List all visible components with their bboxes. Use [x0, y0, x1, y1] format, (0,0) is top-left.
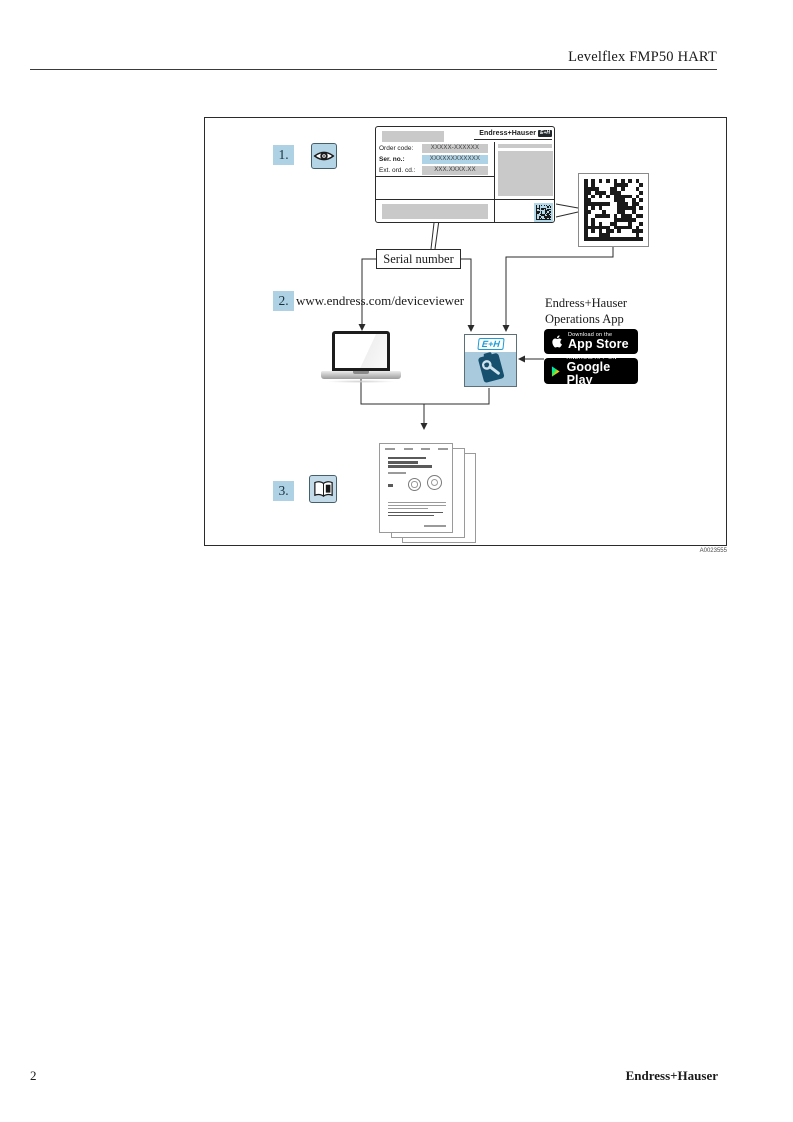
nameplate-placeholder	[498, 151, 553, 196]
figure-identification-diagram: 1. Endress+Hauser E+H Order code: XXXXX-…	[204, 117, 727, 546]
nameplate-row-ext-order-code: Ext. ord. cd.: XXX.XXXX.XX	[379, 165, 488, 175]
nameplate-qr-code-icon	[534, 203, 553, 222]
clipboard-wrench-icon	[469, 351, 513, 387]
header-rule	[30, 69, 717, 70]
eh-logo-icon: E+H	[477, 338, 504, 350]
data-matrix-code-icon	[578, 173, 649, 247]
app-store-badge: Download on the App Store	[544, 329, 638, 354]
step-2-number: 2.	[273, 291, 294, 311]
eye-icon	[311, 143, 337, 169]
nameplate-divider	[494, 142, 495, 223]
step-3-number: 3.	[273, 481, 294, 501]
nameplate-separator	[376, 176, 494, 177]
order-code-value: XXXXX-XXXXXX	[422, 144, 488, 153]
nameplate-placeholder	[382, 204, 488, 219]
document-page-front	[379, 443, 453, 533]
nameplate-row-order-code: Order code: XXXXX-XXXXXX	[379, 143, 488, 153]
device-nameplate: Endress+Hauser E+H Order code: XXXXX-XXX…	[375, 126, 555, 223]
deviceviewer-url: www.endress.com/deviceviewer	[296, 293, 464, 309]
google-play-badge: ANDROID APP ON Google Play	[544, 358, 638, 384]
eh-logo-icon: E+H	[538, 130, 552, 137]
footer-brand: Endress+Hauser	[30, 1068, 718, 1084]
manual-page: Levelflex FMP50 HART	[0, 0, 793, 1122]
nameplate-brand: Endress+Hauser E+H	[474, 130, 552, 140]
step-1-number: 1.	[273, 145, 294, 165]
serial-number-value: XXXXXXXXXXXX	[422, 155, 488, 164]
serial-number-callout: Serial number	[376, 249, 461, 269]
nameplate-title-placeholder	[382, 131, 444, 142]
nameplate-placeholder	[498, 144, 552, 148]
nameplate-row-serial-number: Ser. no.: XXXXXXXXXXXX	[379, 154, 488, 164]
page-title: Levelflex FMP50 HART	[30, 49, 717, 66]
operations-app-title: Endress+Hauser Operations App	[545, 296, 627, 327]
open-book-icon	[309, 475, 337, 503]
google-play-icon	[550, 364, 562, 379]
figure-reference-code: A0023555	[204, 548, 727, 554]
operations-app-icon: E+H	[464, 334, 517, 387]
ext-order-code-value: XXX.XXXX.XX	[422, 166, 488, 175]
nameplate-separator	[376, 199, 554, 200]
apple-icon	[550, 334, 563, 349]
